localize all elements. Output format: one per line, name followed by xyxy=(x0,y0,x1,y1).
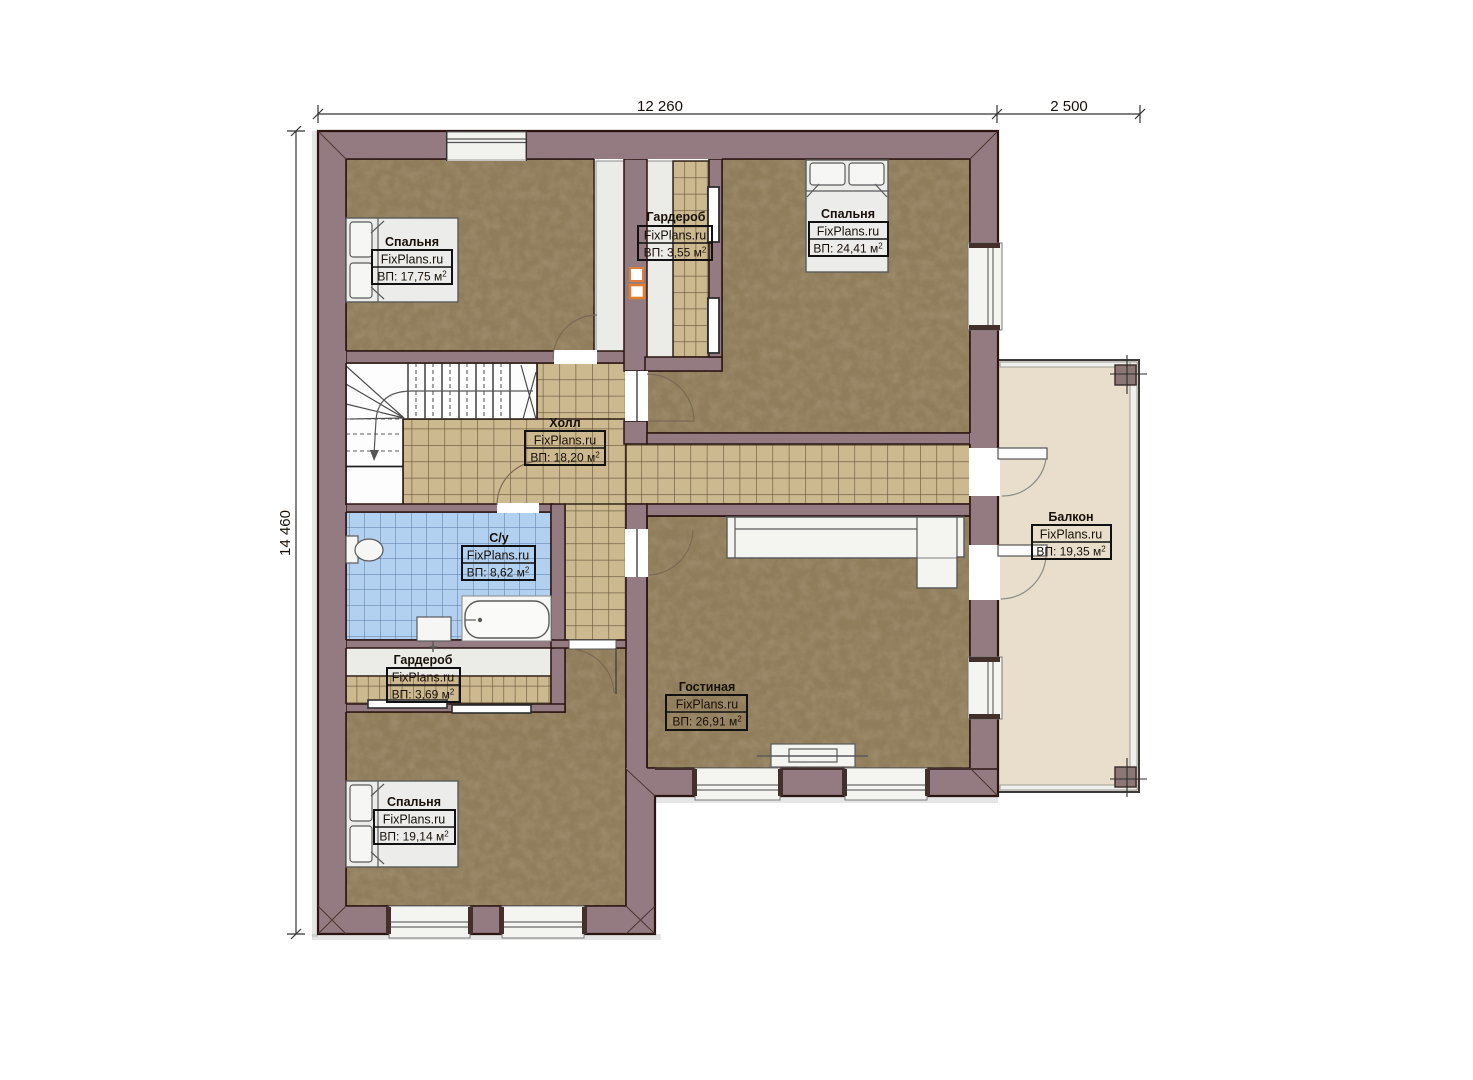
svg-text:ВП: 3,69 м2: ВП: 3,69 м2 xyxy=(392,688,455,702)
svg-text:Балкон: Балкон xyxy=(1048,510,1093,524)
svg-text:Гардероб: Гардероб xyxy=(393,653,452,667)
svg-text:ВП: 3,55 м2: ВП: 3,55 м2 xyxy=(644,246,707,260)
svg-text:FixPlans.ru: FixPlans.ru xyxy=(817,225,880,239)
svg-text:Гардероб: Гардероб xyxy=(646,210,705,224)
svg-text:Спальня: Спальня xyxy=(821,207,875,221)
svg-text:ВП: 17,75 м2: ВП: 17,75 м2 xyxy=(377,270,447,284)
svg-text:FixPlans.ru: FixPlans.ru xyxy=(392,671,455,685)
svg-text:Спальня: Спальня xyxy=(385,235,439,249)
svg-text:12 260: 12 260 xyxy=(637,98,683,115)
svg-text:Спальня: Спальня xyxy=(387,795,441,809)
svg-text:FixPlans.ru: FixPlans.ru xyxy=(467,549,530,563)
svg-text:Гостиная: Гостиная xyxy=(679,680,736,694)
svg-text:С/у: С/у xyxy=(489,531,509,545)
svg-text:Холл: Холл xyxy=(549,416,580,430)
svg-text:FixPlans.ru: FixPlans.ru xyxy=(644,229,707,243)
svg-text:14 460: 14 460 xyxy=(277,510,294,556)
svg-text:FixPlans.ru: FixPlans.ru xyxy=(1040,528,1103,542)
svg-text:2 500: 2 500 xyxy=(1050,98,1088,115)
svg-text:FixPlans.ru: FixPlans.ru xyxy=(381,253,444,267)
svg-text:ВП: 19,14 м2: ВП: 19,14 м2 xyxy=(379,830,449,844)
svg-text:FixPlans.ru: FixPlans.ru xyxy=(383,813,446,827)
svg-text:FixPlans.ru: FixPlans.ru xyxy=(534,434,597,448)
svg-text:ВП: 26,91 м2: ВП: 26,91 м2 xyxy=(672,715,742,729)
svg-text:ВП: 18,20 м2: ВП: 18,20 м2 xyxy=(530,451,600,465)
svg-text:ВП: 19,35 м2: ВП: 19,35 м2 xyxy=(1036,545,1106,559)
svg-text:ВП: 24,41 м2: ВП: 24,41 м2 xyxy=(813,242,883,256)
svg-text:FixPlans.ru: FixPlans.ru xyxy=(676,698,739,712)
svg-text:ВП: 8,62 м2: ВП: 8,62 м2 xyxy=(467,566,530,580)
